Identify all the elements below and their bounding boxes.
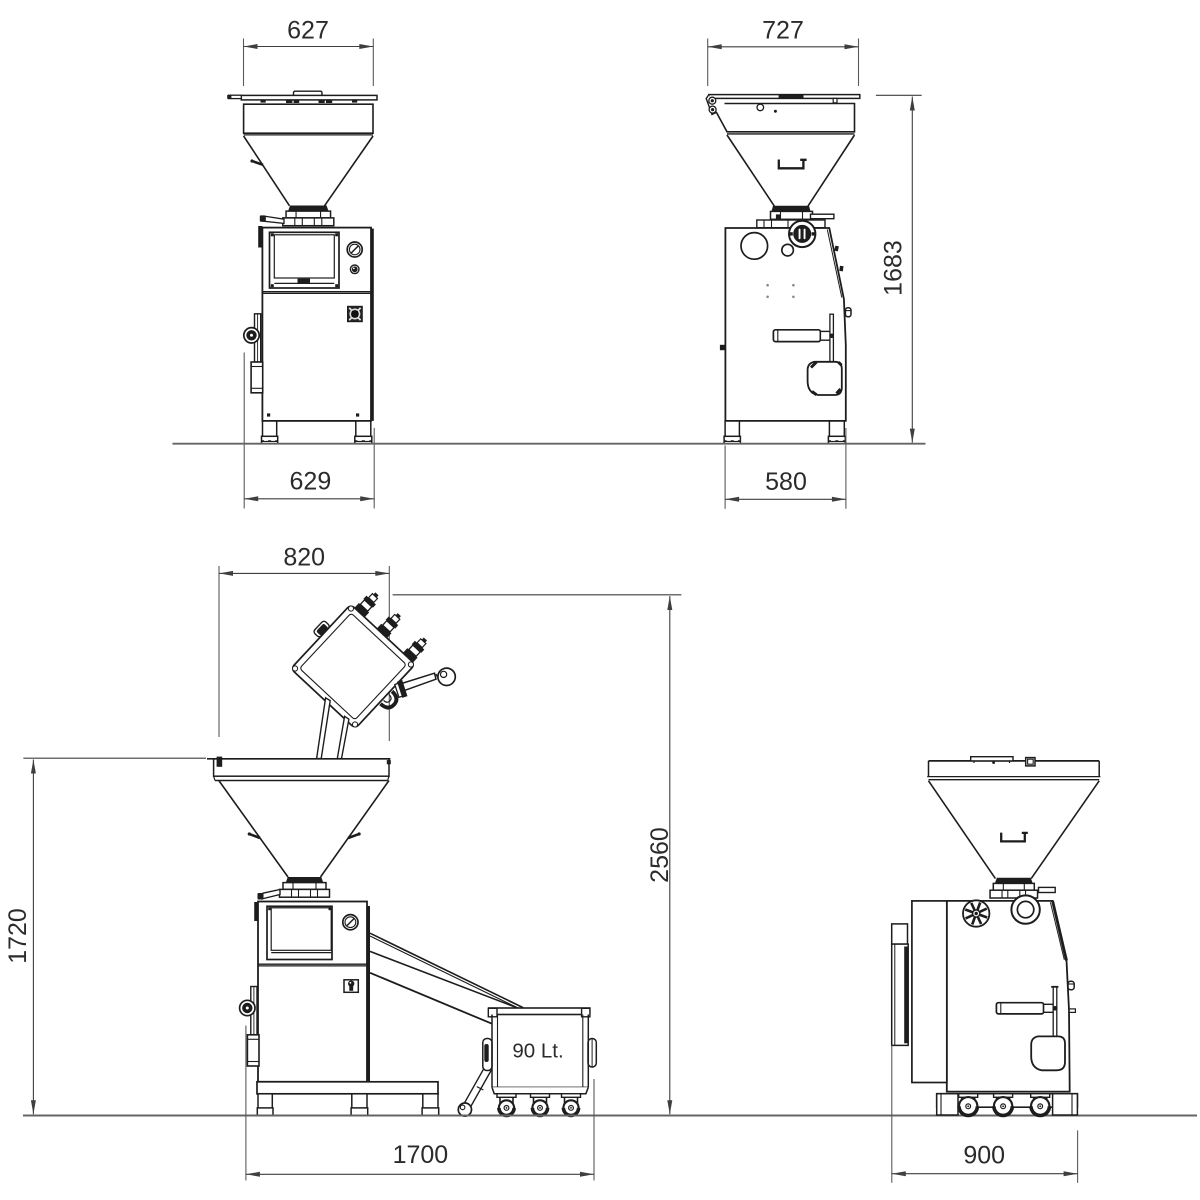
svg-text:727: 727 xyxy=(762,17,804,45)
svg-text:2560: 2560 xyxy=(646,827,674,883)
svg-text:629: 629 xyxy=(290,468,332,496)
svg-text:1683: 1683 xyxy=(880,240,908,296)
svg-text:1700: 1700 xyxy=(393,1141,449,1169)
svg-text:627: 627 xyxy=(287,17,329,45)
svg-text:900: 900 xyxy=(963,1142,1005,1170)
svg-text:1720: 1720 xyxy=(4,908,32,964)
svg-text:820: 820 xyxy=(283,543,325,571)
svg-text:90 Lt.: 90 Lt. xyxy=(512,1040,563,1063)
svg-text:580: 580 xyxy=(765,468,807,496)
